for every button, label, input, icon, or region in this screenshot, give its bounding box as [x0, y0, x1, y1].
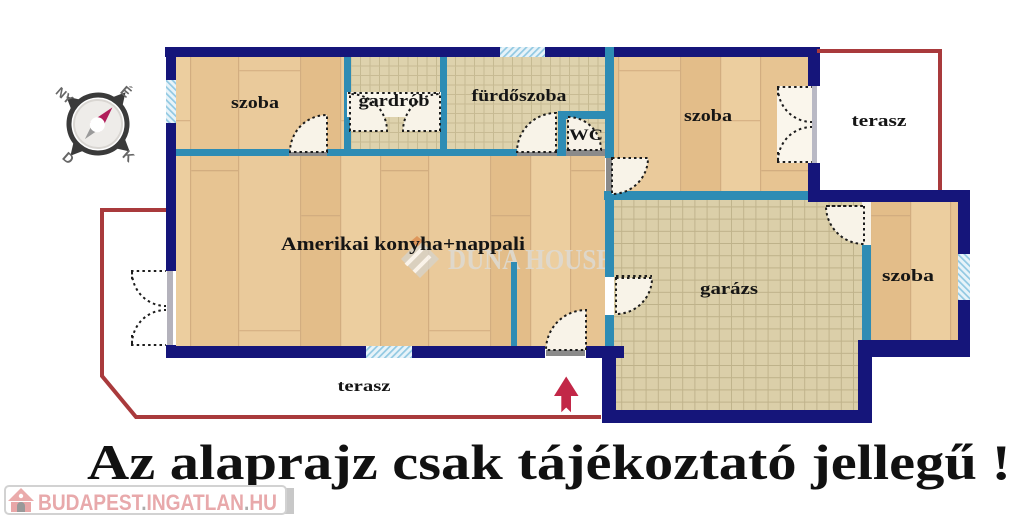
svg-text:fürdőszoba: fürdőszoba	[472, 86, 568, 105]
svg-text:terasz: terasz	[338, 378, 391, 395]
svg-text:WC: WC	[569, 127, 603, 144]
svg-text:Amerikai konyha+nappali: Amerikai konyha+nappali	[281, 234, 525, 255]
svg-text:BUDAPEST.INGATLAN.HU: BUDAPEST.INGATLAN.HU	[38, 490, 277, 515]
svg-text:szoba: szoba	[231, 93, 280, 112]
svg-text:Az alaprajz csak tájékoztató j: Az alaprajz csak tájékoztató jellegű !	[87, 434, 1011, 490]
svg-text:gardrób: gardrób	[359, 91, 430, 110]
svg-text:garázs: garázs	[700, 279, 758, 298]
svg-text:terasz: terasz	[852, 111, 908, 130]
svg-text:szoba: szoba	[684, 106, 733, 125]
svg-text:szoba: szoba	[882, 266, 935, 285]
